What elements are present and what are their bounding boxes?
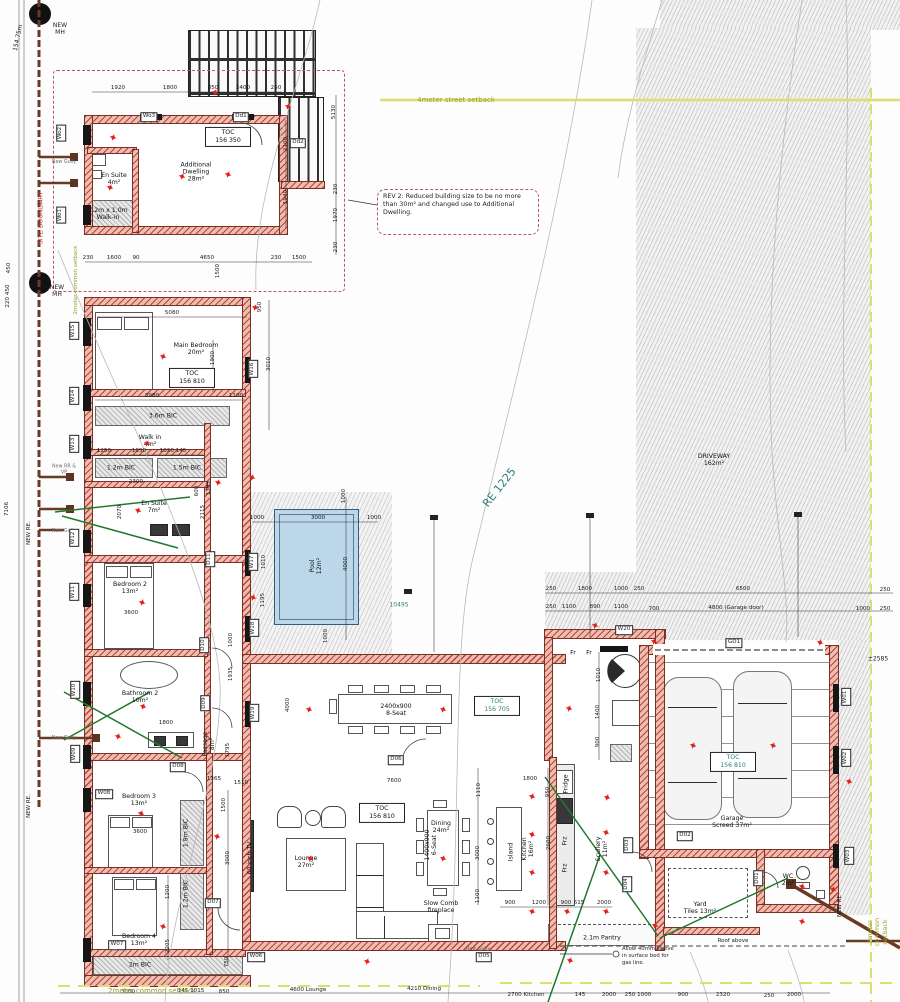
opening-label-w11: W11 xyxy=(69,583,79,601)
dim-label: 250 xyxy=(764,993,775,999)
toc-marker: TOC 156 810 xyxy=(359,803,405,823)
built-in-cupboard xyxy=(93,953,243,975)
window-sill xyxy=(245,357,250,383)
built-in-cupboard xyxy=(157,458,227,478)
furniture xyxy=(416,818,424,832)
wall-segment xyxy=(85,298,250,305)
opening-label-w10: W10 xyxy=(70,681,80,699)
window-sill xyxy=(83,318,91,346)
built-in-cupboard xyxy=(95,406,230,426)
dim-label: 145 1015 xyxy=(178,988,205,994)
furniture xyxy=(416,862,424,876)
round-furniture xyxy=(487,818,494,825)
furniture xyxy=(374,726,389,734)
annotation: RE 1225 xyxy=(481,466,519,510)
street-boundary-line xyxy=(23,0,25,1002)
wall-segment xyxy=(640,646,648,858)
light-symbol: ✦ xyxy=(564,954,576,967)
wall-segment xyxy=(640,850,838,857)
window-sill xyxy=(83,682,91,706)
opening-label-w12: W12 xyxy=(69,529,79,547)
furniture xyxy=(356,911,438,939)
dark-bar xyxy=(356,875,384,876)
round-furniture xyxy=(487,878,494,885)
window-sill xyxy=(245,616,250,642)
furniture xyxy=(286,838,346,891)
furniture xyxy=(130,566,152,578)
wall-segment xyxy=(243,655,565,663)
wall-segment xyxy=(207,754,212,954)
wall-segment xyxy=(85,390,245,396)
appliance xyxy=(172,524,190,536)
dim-label: 4210 Dining xyxy=(407,986,441,992)
geyser xyxy=(608,654,642,688)
furniture xyxy=(433,888,447,896)
wall-segment xyxy=(205,560,210,760)
built-in-cupboard xyxy=(180,872,204,930)
dim-label: 250 xyxy=(880,587,891,593)
round-furniture xyxy=(305,810,321,826)
appliance xyxy=(555,798,573,824)
street-boundary-line xyxy=(18,0,20,1002)
dim-label: 250 xyxy=(880,606,891,612)
dark-bar xyxy=(738,778,787,779)
wall-segment xyxy=(664,928,759,934)
wall-segment xyxy=(545,630,665,638)
wall-segment xyxy=(243,942,565,950)
wall-segment xyxy=(243,298,250,658)
car xyxy=(663,677,722,820)
window-sill xyxy=(833,684,839,712)
furniture xyxy=(435,928,450,939)
wall-segment xyxy=(656,630,664,950)
paving-hatch xyxy=(636,28,871,640)
wall-segment xyxy=(85,556,245,562)
furniture xyxy=(462,862,470,876)
wall-segment xyxy=(85,868,207,873)
wall-segment xyxy=(85,450,209,455)
dim-label: 2700 Kitchen xyxy=(507,992,544,998)
furniture xyxy=(329,699,337,714)
dim-label: 7106 xyxy=(4,502,10,516)
furniture xyxy=(612,700,640,726)
furniture xyxy=(110,817,130,828)
furniture xyxy=(427,810,459,886)
wall-segment xyxy=(550,758,556,948)
furniture xyxy=(114,879,134,890)
wall-segment xyxy=(205,424,210,560)
dim-label: 2000 xyxy=(787,992,801,998)
opening-label-w13: W13 xyxy=(69,435,79,453)
toc-marker: TOC 156 810 xyxy=(710,752,756,772)
furniture xyxy=(132,817,152,828)
dark-bar xyxy=(356,907,384,908)
toc-marker: TOC 156 810 xyxy=(169,368,215,388)
dim-label: 3000 xyxy=(121,989,135,995)
annotation: New Gully xyxy=(52,736,76,742)
window-sill xyxy=(83,530,91,553)
dim-label: 2320 xyxy=(716,992,730,998)
opening-label-w06: W06 xyxy=(247,952,265,962)
dim-label: 2000 xyxy=(602,992,616,998)
opening-label-w15: W15 xyxy=(69,322,79,340)
annotation: 2meter common setback xyxy=(108,987,196,995)
furniture xyxy=(338,694,452,724)
dark-bar xyxy=(668,782,717,783)
window-sill xyxy=(600,646,628,652)
paving-hatch xyxy=(660,0,900,30)
opening-label-w09: W09 xyxy=(70,745,80,763)
wall-segment xyxy=(243,655,250,950)
furniture xyxy=(124,317,149,330)
wall-segment xyxy=(85,482,207,487)
appliance xyxy=(176,736,188,746)
furniture xyxy=(348,726,363,734)
dark-bar xyxy=(384,916,385,939)
manhole xyxy=(29,3,51,25)
pool-inner-edge xyxy=(279,514,354,620)
dim-label: 145 xyxy=(575,992,586,998)
window-sill xyxy=(83,385,91,411)
toc-marker: TOC 156 705 xyxy=(474,696,520,716)
light-symbol: ✦ xyxy=(796,915,808,928)
round-furniture xyxy=(487,838,494,845)
annotation: 4meter street setback xyxy=(417,96,495,104)
window-sill xyxy=(83,938,91,962)
roof-outline-dashed xyxy=(668,868,748,918)
floor-plan: REV 2: Reduced building size to be no mo… xyxy=(0,0,900,1002)
window-sill xyxy=(245,550,250,576)
revision-note: REV 2: Reduced building size to be no mo… xyxy=(377,189,539,235)
round-furniture xyxy=(487,858,494,865)
window-sill xyxy=(83,436,91,459)
furniture xyxy=(496,807,522,891)
furniture xyxy=(106,566,128,578)
wall-segment xyxy=(757,850,764,912)
light-symbol: ✦ xyxy=(361,955,373,968)
furniture xyxy=(416,840,424,854)
furniture xyxy=(794,882,810,889)
furniture xyxy=(426,685,441,693)
annotation: NEW MH xyxy=(53,23,67,37)
annotation: 2meter common setback xyxy=(867,918,889,946)
window-sill xyxy=(83,788,91,812)
dim-label: 250 1000 xyxy=(625,992,652,998)
garage-door-opening xyxy=(653,644,825,655)
wall-segment xyxy=(85,950,245,956)
dim-label: 220 450 xyxy=(5,284,11,307)
annotation: Roof above xyxy=(718,938,749,944)
car xyxy=(733,671,792,818)
manhole xyxy=(29,272,51,294)
furniture xyxy=(816,890,825,899)
window-sill xyxy=(83,745,91,769)
furniture xyxy=(426,726,441,734)
furniture xyxy=(462,818,470,832)
dwelling-site-boundary xyxy=(53,70,345,292)
furniture xyxy=(348,685,363,693)
paving-hatch xyxy=(838,640,871,915)
wall-segment xyxy=(85,976,250,986)
furniture xyxy=(433,800,447,808)
dark-bar xyxy=(188,58,316,61)
annotation: 10495 xyxy=(389,603,408,610)
built-in-cupboard xyxy=(95,458,153,478)
light-symbol: ✦ xyxy=(249,301,261,314)
armchair xyxy=(321,806,346,828)
annotation: New Gully xyxy=(52,529,76,535)
furniture xyxy=(400,685,415,693)
furniture xyxy=(555,770,573,794)
room-label: WC 2m² xyxy=(782,873,794,887)
annotation: New RR & VP xyxy=(52,464,76,475)
dim-label: 450 xyxy=(6,263,12,274)
opening-label-d05: D05 xyxy=(476,952,492,962)
bathtub xyxy=(120,661,178,689)
window-sill xyxy=(833,746,839,774)
armchair xyxy=(277,806,302,828)
appliance xyxy=(150,524,168,536)
wall-segment xyxy=(757,905,837,912)
furniture xyxy=(400,726,415,734)
dim-label: 950 xyxy=(257,302,263,313)
dim-label: 4600 Lounge xyxy=(290,987,327,993)
annotation: NEW RE. xyxy=(26,521,32,545)
window-sill xyxy=(833,844,839,868)
wall-segment xyxy=(85,650,207,656)
wall-segment xyxy=(85,754,243,760)
built-in-cupboard xyxy=(610,744,632,762)
dim-label: 850 xyxy=(219,989,230,995)
annotation: SITE BOUNDARY xyxy=(37,192,44,245)
window-sill xyxy=(83,584,91,607)
dim-label: 3010 xyxy=(266,357,272,371)
furniture xyxy=(97,317,122,330)
annotation: NEW RE. xyxy=(26,794,32,818)
opening-label-w14: W14 xyxy=(69,387,79,405)
dim-label: 900 xyxy=(678,992,689,998)
furniture xyxy=(136,879,156,890)
appliance xyxy=(154,736,166,746)
furniture xyxy=(374,685,389,693)
wall-segment xyxy=(545,638,552,760)
dark-bar xyxy=(668,707,717,708)
furniture xyxy=(462,840,470,854)
dark-bar xyxy=(738,703,787,704)
round-furniture xyxy=(796,866,810,880)
built-in-cupboard xyxy=(180,800,204,866)
window-sill xyxy=(245,701,250,727)
toc-marker: TOC 156 350 xyxy=(205,127,251,147)
